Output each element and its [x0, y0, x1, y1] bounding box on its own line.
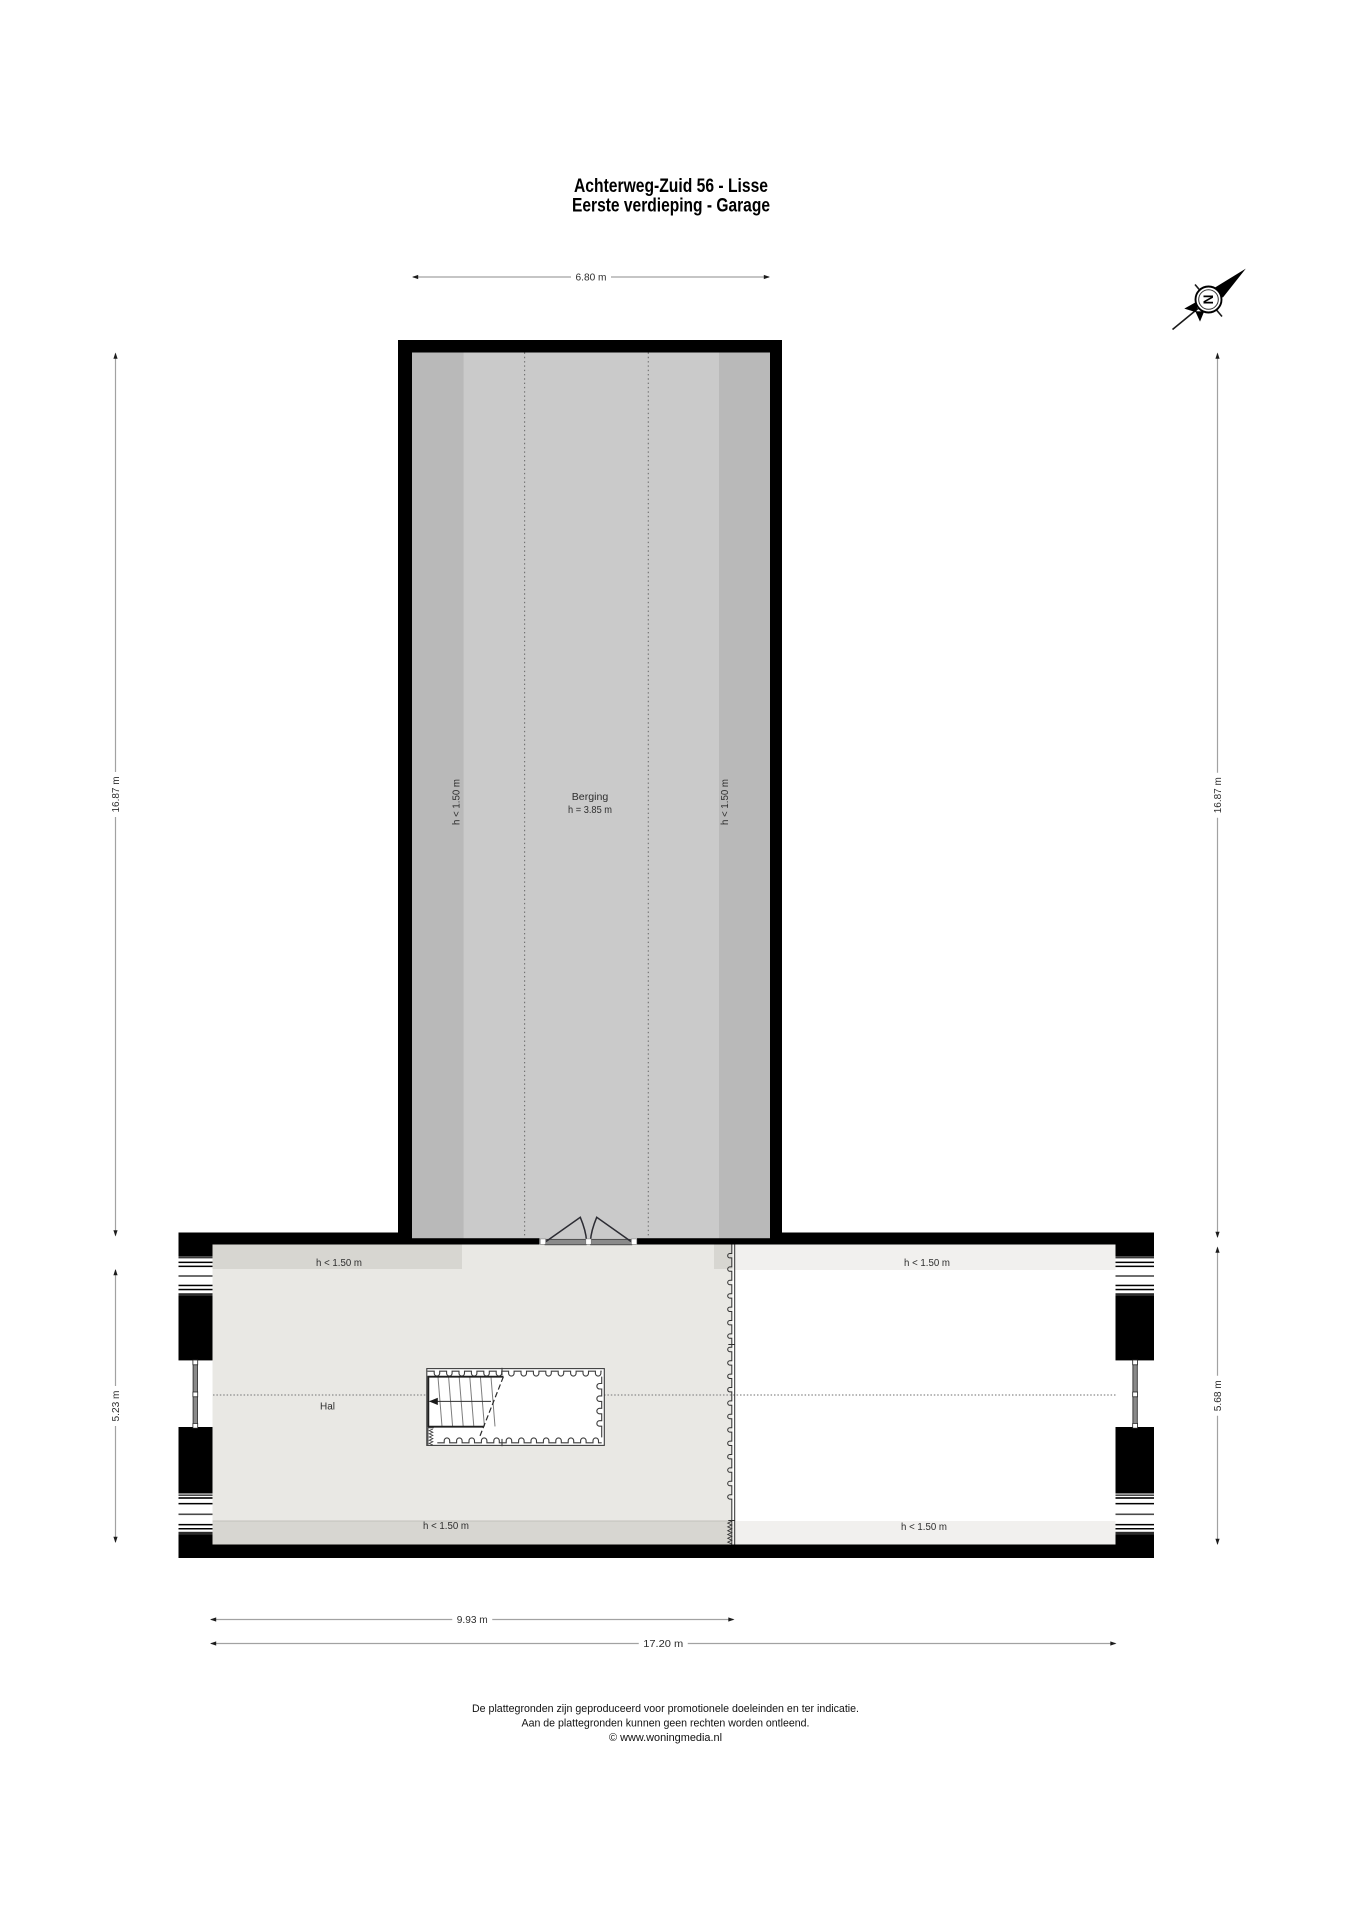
svg-text:h < 1.50 m: h < 1.50 m	[904, 1258, 950, 1269]
svg-text:16.87 m: 16.87 m	[111, 777, 122, 813]
svg-text:h < 1.50 m: h < 1.50 m	[316, 1258, 362, 1269]
svg-text:h < 1.50 m: h < 1.50 m	[423, 1521, 469, 1532]
svg-text:Eerste verdieping - Garage: Eerste verdieping - Garage	[572, 195, 770, 217]
svg-text:h = 3.85 m: h = 3.85 m	[568, 804, 612, 816]
svg-text:h < 1.50 m: h < 1.50 m	[452, 779, 463, 825]
svg-text:Berging: Berging	[572, 791, 609, 803]
svg-text:h < 1.50 m: h < 1.50 m	[720, 779, 731, 825]
svg-text:© www.woningmedia.nl: © www.woningmedia.nl	[609, 1732, 722, 1744]
svg-text:6.80 m: 6.80 m	[576, 273, 607, 284]
svg-text:Aan de plattegronden kunnen ge: Aan de plattegronden kunnen geen rechten…	[522, 1718, 810, 1730]
svg-text:De plattegronden zijn geproduc: De plattegronden zijn geproduceerd voor …	[472, 1703, 859, 1715]
svg-text:5.68 m: 5.68 m	[1213, 1380, 1224, 1411]
svg-text:17.20 m: 17.20 m	[643, 1639, 683, 1650]
svg-text:N: N	[1201, 295, 1216, 305]
svg-text:5.23 m: 5.23 m	[111, 1391, 122, 1422]
svg-text:16.87 m: 16.87 m	[1213, 777, 1224, 813]
svg-text:h < 1.50 m: h < 1.50 m	[901, 1522, 947, 1533]
svg-text:Hal: Hal	[320, 1401, 335, 1413]
svg-text:9.93 m: 9.93 m	[457, 1615, 488, 1626]
